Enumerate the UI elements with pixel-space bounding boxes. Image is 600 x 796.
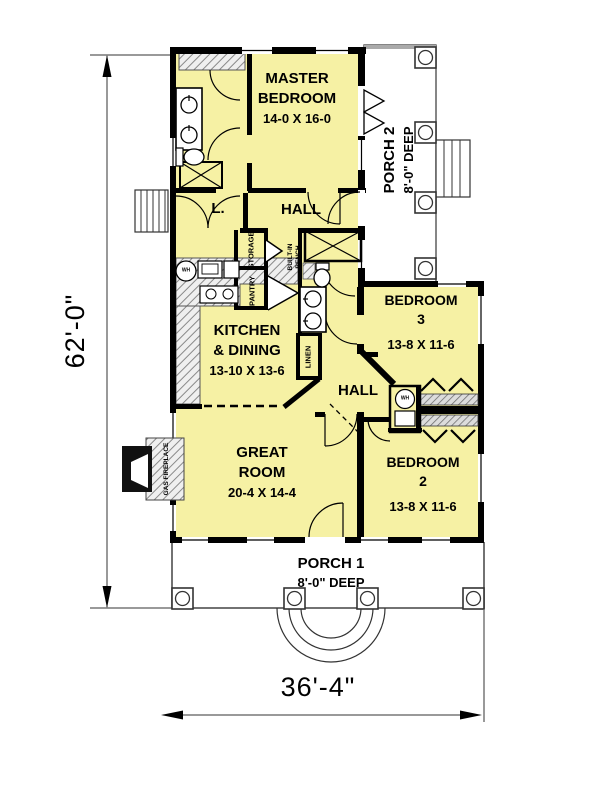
closet-rod-bed2: [420, 415, 478, 426]
master-bedroom-label: MASTER BEDROOM 14-0 X 16-0: [258, 69, 336, 127]
width-dimension-label: 36'-4": [281, 669, 356, 705]
linen-label: LINEN: [303, 346, 312, 369]
room-name: ROOM: [228, 463, 296, 483]
toilet: [184, 149, 204, 165]
room-name: & DINING: [209, 341, 284, 361]
bedroom3-label: BEDROOM 3 13-8 X 11-6: [384, 291, 457, 353]
gas-fireplace-label: GAS FIREPLACE: [163, 443, 171, 496]
porch2-steps: [436, 140, 470, 197]
height-dimension-label: 62'-0": [57, 294, 93, 369]
water-heater-label: WH: [401, 396, 409, 403]
room-name: 2: [386, 472, 459, 491]
pantry-label: PANTRY: [247, 276, 256, 306]
room-name: PORCH 2: [380, 126, 400, 193]
room-name: BEDROOM: [258, 89, 336, 109]
hall-lower-label: HALL: [338, 381, 378, 401]
room-name: BEDROOM: [384, 291, 457, 310]
fireplace: [122, 438, 184, 500]
back-door-gap: [358, 190, 365, 226]
room-name: GREAT: [228, 443, 296, 463]
room-size: 13-10 X 13-6: [209, 361, 284, 379]
room-size: 20-4 X 14-4: [228, 483, 296, 501]
washer-label: WH: [182, 268, 190, 275]
closet-shelf: [179, 53, 245, 70]
room-size: 14-0 X 16-0: [258, 109, 336, 127]
room-name: PORCH 1: [297, 554, 364, 574]
closet-rod-bed3: [420, 394, 478, 405]
dishwasher: [224, 261, 239, 278]
built-in-bench-label: BUILT-IN BENCH: [287, 244, 303, 271]
room-name: BEDROOM: [386, 453, 459, 472]
front-steps-arc: [277, 608, 385, 662]
room-name: 3: [384, 310, 457, 329]
room-size: 13-8 X 11-6: [386, 498, 459, 516]
room-size: 8'-0" DEEP: [400, 126, 418, 193]
toilet: [314, 269, 330, 287]
front-door-gap: [305, 537, 345, 543]
room-size: 8'-0" DEEP: [297, 574, 364, 592]
porch1-label: PORCH 1 8'-0" DEEP: [297, 554, 364, 592]
hall-upper-label: HALL: [281, 200, 321, 220]
kitchen-counter-left: [176, 306, 200, 404]
bath2-shelf: [303, 263, 315, 279]
laundry-label: L.: [211, 199, 224, 219]
toilet-tank: [176, 148, 183, 166]
porch2-label: PORCH 2 8'-0" DEEP: [380, 126, 418, 193]
storage-label: STORAGE: [246, 232, 255, 269]
room-name: KITCHEN: [209, 321, 284, 341]
room-name: MASTER: [258, 69, 336, 89]
room-size: 13-8 X 11-6: [384, 336, 457, 354]
great-room-label: GREAT ROOM 20-4 X 14-4: [228, 443, 296, 501]
floor-plan: MASTER BEDROOM 14-0 X 16-0 PORCH 2 8'-0"…: [0, 0, 600, 796]
kitchen-dining-label: KITCHEN & DINING 13-10 X 13-6: [209, 321, 284, 379]
bedroom2-label: BEDROOM 2 13-8 X 11-6: [386, 453, 459, 515]
side-steps: [135, 190, 168, 232]
front-steps-arc: [301, 608, 361, 638]
hvac-unit: [395, 411, 415, 426]
